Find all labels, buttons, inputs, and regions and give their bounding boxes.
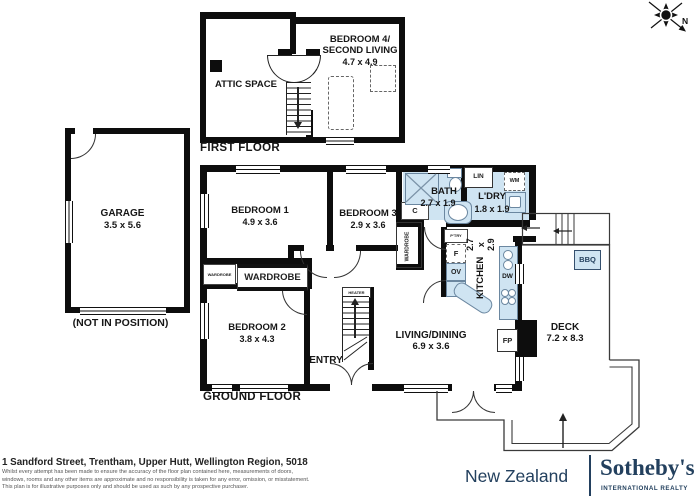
window xyxy=(428,165,450,174)
wall-segment xyxy=(326,245,334,251)
garage-dims: 3.5 x 5.6 xyxy=(104,220,141,231)
window xyxy=(236,165,280,174)
door-swing-arc xyxy=(473,391,495,413)
wall-segment xyxy=(290,12,296,54)
floor-plan-page: ATTIC SPACE BEDROOM 4/ SECOND LIVING 4.7… xyxy=(0,0,700,500)
wardrobe-small: WARDROBE xyxy=(203,264,236,285)
stair-arrow-down xyxy=(294,122,302,129)
linen-cupboard: LIN xyxy=(464,167,493,188)
window xyxy=(404,384,448,393)
sink-bowl xyxy=(503,250,513,260)
compass-arrow-head xyxy=(679,25,686,32)
bath-label: BATH xyxy=(420,187,468,198)
oven: OV xyxy=(446,263,466,281)
cooktop-burner xyxy=(508,297,516,305)
window xyxy=(496,384,512,393)
fridge: F xyxy=(446,244,466,263)
exterior-steps xyxy=(556,214,574,244)
door-swing-arc xyxy=(423,280,446,303)
compass-ring xyxy=(661,10,672,21)
living-dims: 6.9 x 3.6 xyxy=(391,342,471,353)
bedroom1-name: BEDROOM 1 xyxy=(231,205,289,216)
stair-arrow-up xyxy=(351,298,359,305)
wall-segment xyxy=(184,128,190,313)
living-label: LIVING/DINING xyxy=(391,330,471,342)
window xyxy=(240,384,288,393)
compass-line xyxy=(649,2,684,30)
sink-bowl xyxy=(503,260,513,270)
bedroom2-name: BEDROOM 2 xyxy=(228,322,286,333)
bbq: BBQ xyxy=(574,250,601,270)
brand-region: New Zealand xyxy=(465,466,568,487)
wall-segment xyxy=(356,245,398,251)
garage-label: GARAGE 3.5 x 5.6 xyxy=(80,208,165,231)
garage-note: (NOT IN POSITION) xyxy=(58,317,183,329)
wall-segment xyxy=(529,165,536,220)
wall-segment xyxy=(93,128,190,134)
brand-tagline: INTERNATIONAL REALTY xyxy=(601,485,688,492)
window xyxy=(200,303,209,339)
fireplace-label-box: FP xyxy=(497,329,518,352)
brand-separator xyxy=(589,455,591,496)
wardrobe-main: WARDROBE xyxy=(237,264,308,291)
bedroom4-line1: BEDROOM 4/ xyxy=(330,34,390,45)
wall-segment xyxy=(294,17,405,24)
compass-star xyxy=(654,3,678,27)
wall-segment xyxy=(327,165,333,251)
window xyxy=(515,357,524,381)
laundry-dims: 1.8 x 1.9 xyxy=(467,204,517,214)
window xyxy=(65,201,73,243)
window xyxy=(515,264,524,284)
wardrobe-side: WARDROBE xyxy=(404,223,413,271)
skylight-outline xyxy=(328,76,354,130)
compass-north-label: N xyxy=(682,16,688,26)
skylight-outline xyxy=(370,65,396,92)
door-swing-arc xyxy=(452,391,474,413)
bedroom3-label: BEDROOM 3 2.9 x 3.6 xyxy=(332,209,404,232)
door-swing-arc xyxy=(351,363,373,385)
bedroom3-dims: 2.9 x 3.6 xyxy=(350,220,385,230)
laundry-label: L'DRY xyxy=(467,192,517,203)
bedroom2-dims: 3.8 x 4.3 xyxy=(239,334,274,344)
bedroom1-label: BEDROOM 1 4.9 x 3.6 xyxy=(215,206,305,229)
stair-arrow-line xyxy=(297,87,299,123)
window xyxy=(326,137,354,145)
disclaimer-line: windows, rooms and any other items are a… xyxy=(2,477,309,483)
bedroom2-label: BEDROOM 2 3.8 x 4.3 xyxy=(212,323,302,346)
attic-label: ATTIC SPACE xyxy=(202,80,290,91)
bedroom3-name: BEDROOM 3 xyxy=(339,208,397,219)
first-floor-title: FIRST FLOOR xyxy=(200,142,310,155)
chimney xyxy=(210,60,222,72)
deck-label: DECK xyxy=(535,322,595,334)
cooktop-burner xyxy=(508,289,516,297)
fireplace-block xyxy=(515,320,537,357)
stair-arrow-line xyxy=(354,304,356,338)
kitchen-dims: 2.7 x 2.9 xyxy=(465,235,496,254)
bath-dims: 2.7 x 1.9 xyxy=(414,198,462,208)
pantry: P'TRY xyxy=(444,229,468,243)
compass-line xyxy=(651,3,682,28)
disclaimer-line: This plan is for illustrative purposes o… xyxy=(2,484,248,490)
kitchen-label: KITCHEN 2.7 x 2.9 xyxy=(468,235,494,299)
wall-segment xyxy=(200,12,206,143)
bedroom1-dims: 4.9 x 3.6 xyxy=(242,217,277,227)
dishwasher-label: DW xyxy=(499,273,516,280)
deck-dims: 7.2 x 8.3 xyxy=(535,334,595,345)
stair-landing xyxy=(342,340,369,362)
window xyxy=(200,194,209,228)
window xyxy=(212,384,232,393)
garage-door xyxy=(80,307,166,315)
bedroom4-dims: 4.7 x 4.9 xyxy=(342,57,377,67)
kitchen-name: KITCHEN xyxy=(476,257,487,299)
door-swing-arc xyxy=(71,134,96,159)
deck-arrow-head xyxy=(559,413,567,421)
bedroom4-label: BEDROOM 4/ SECOND LIVING 4.7 x 4.9 xyxy=(318,35,402,69)
disclaimer-line: Whilst every attempt has been made to en… xyxy=(2,469,293,475)
walkway-inner-outline xyxy=(512,367,632,444)
door-swing-arc xyxy=(282,290,307,315)
wall-segment xyxy=(200,12,296,19)
window xyxy=(346,165,386,174)
washing-machine: WM xyxy=(504,172,525,191)
door-swing-arc xyxy=(334,251,361,278)
door-arrow-head xyxy=(553,228,559,234)
brand-logo: Sotheby's xyxy=(600,455,695,481)
garage-name: GARAGE xyxy=(101,208,145,219)
bedroom4-line2: SECOND LIVING xyxy=(323,45,398,56)
property-address: 1 Sandford Street, Trentham, Upper Hutt,… xyxy=(2,457,308,468)
